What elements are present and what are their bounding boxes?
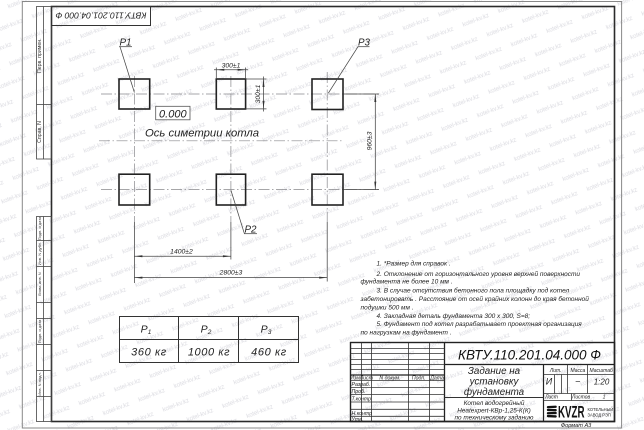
svg-text:Т.контр: Т.контр bbox=[352, 396, 372, 402]
svg-text:Масса: Масса bbox=[571, 368, 586, 374]
svg-text:КВТУ.110.201.04.000 Ф: КВТУ.110.201.04.000 Ф bbox=[458, 348, 601, 363]
svg-text:5. Фундамент под котел разраб: 5. Фундамент под котел разрабатывает про… bbox=[377, 320, 583, 328]
svg-text:1:20: 1:20 bbox=[594, 378, 610, 387]
svg-text:360 кг: 360 кг bbox=[131, 347, 167, 359]
svg-text:KVZR: KVZR bbox=[558, 403, 585, 422]
svg-text:по техническому заданию: по техническому заданию bbox=[455, 414, 534, 422]
svg-text:КОТЕЛЬНЫЙ: КОТЕЛЬНЫЙ bbox=[588, 407, 614, 412]
svg-text:P2: P2 bbox=[245, 225, 258, 236]
svg-text:Лист: Лист bbox=[359, 375, 374, 381]
svg-text:3. В случае отсутствия бетонн: 3. В случае отсутствия бетонного пола пл… bbox=[377, 286, 570, 294]
svg-text:Справ. N: Справ. N bbox=[37, 121, 43, 143]
svg-text:Задание на: Задание на bbox=[468, 366, 521, 377]
svg-text:Инв. N подл.: Инв. N подл. bbox=[37, 372, 42, 396]
svg-text:Инв. N дубл.: Инв. N дубл. bbox=[37, 242, 42, 265]
svg-text:Перв. примен.: Перв. примен. bbox=[37, 38, 43, 72]
svg-text:4. Закладная деталь фундамент: 4. Закладная деталь фундамента 300 х 300… bbox=[377, 312, 531, 320]
svg-text:Листов: Листов bbox=[571, 395, 591, 401]
svg-text:Подп. и дата: Подп. и дата bbox=[37, 216, 42, 240]
svg-text:P3: P3 bbox=[358, 38, 371, 49]
svg-text:2. Отклонение от горизонтальн: 2. Отклонение от горизонтального уровня … bbox=[376, 270, 581, 278]
svg-text:2800±3: 2800±3 bbox=[219, 270, 243, 277]
svg-text:Разраб.: Разраб. bbox=[352, 382, 371, 388]
svg-text:Котел водогрейный: Котел водогрейный bbox=[464, 399, 525, 407]
svg-text:960±3: 960±3 bbox=[367, 131, 374, 150]
svg-text:Лист: Лист bbox=[544, 395, 558, 401]
svg-text:1: 1 bbox=[603, 395, 606, 401]
svg-text:КВТУ.110.201.04.000 Ф: КВТУ.110.201.04.000 Ф bbox=[55, 11, 146, 21]
svg-text:установку: установку bbox=[469, 377, 520, 388]
svg-text:Лит.: Лит. bbox=[549, 368, 562, 374]
svg-text:N докум.: N докум. bbox=[379, 375, 400, 381]
svg-text:И: И bbox=[546, 377, 553, 387]
svg-text:Подп. и дата: Подп. и дата bbox=[37, 319, 42, 343]
svg-text:460 кг: 460 кг bbox=[251, 347, 287, 359]
svg-text:Heatexpert-КВр-1,25-К(К): Heatexpert-КВр-1,25-К(К) bbox=[457, 408, 530, 415]
svg-text:Дата: Дата bbox=[429, 375, 444, 381]
svg-text:Ось симетрии котла: Ось симетрии котла bbox=[145, 128, 259, 140]
svg-text:300±1: 300±1 bbox=[255, 84, 262, 103]
svg-text:Формат А3: Формат А3 bbox=[561, 423, 592, 429]
svg-text:фундамента не более 10 мм .: фундамента не более 10 мм . bbox=[361, 277, 453, 285]
svg-text:1400±2: 1400±2 bbox=[170, 248, 193, 255]
svg-text:фундамента: фундамента bbox=[464, 387, 525, 398]
svg-text:Масштаб: Масштаб bbox=[590, 368, 614, 374]
svg-text:ЗАВОД РЭП: ЗАВОД РЭП bbox=[588, 412, 611, 417]
svg-text:Утв.: Утв. bbox=[352, 417, 364, 423]
svg-text:300±1: 300±1 bbox=[222, 62, 241, 69]
svg-text:1. *Размер для справок .: 1. *Размер для справок . bbox=[377, 259, 451, 267]
svg-text:0.000: 0.000 bbox=[159, 108, 187, 120]
svg-text:P1: P1 bbox=[120, 38, 132, 49]
svg-text:Подп.: Подп. bbox=[412, 375, 426, 381]
svg-text:забетонировать . Расстояние о: забетонировать . Расстояние от осей край… bbox=[360, 295, 590, 303]
svg-text:Взам. инв. N: Взам. инв. N bbox=[37, 272, 42, 295]
svg-text:–: – bbox=[575, 377, 581, 386]
svg-text:1000 кг: 1000 кг bbox=[188, 347, 230, 359]
svg-text:подушки 500 мм .: подушки 500 мм . bbox=[361, 303, 414, 311]
svg-text:по нагрузкам на фундамент .: по нагрузкам на фундамент . bbox=[361, 328, 452, 336]
svg-text:Проб.: Проб. bbox=[352, 389, 366, 395]
